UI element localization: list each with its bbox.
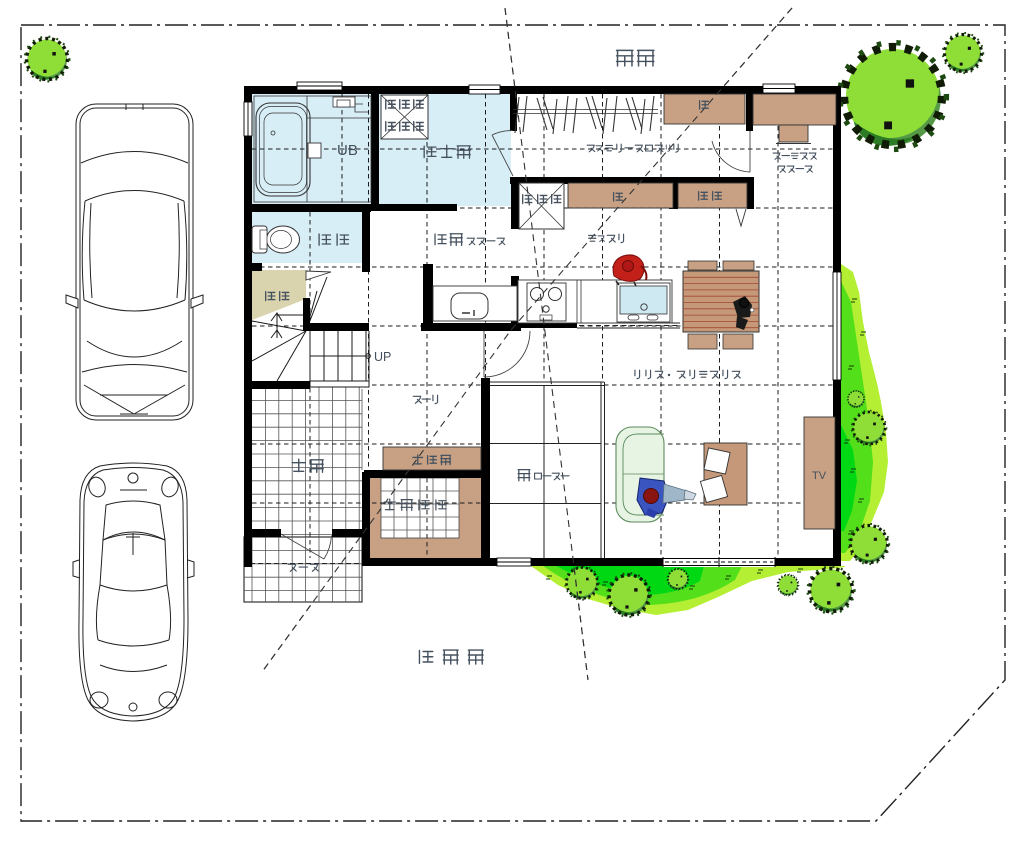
svg-text:UP: UP: [374, 350, 391, 364]
svg-text:TV: TV: [812, 470, 827, 482]
svg-text:UB: UB: [337, 142, 358, 159]
